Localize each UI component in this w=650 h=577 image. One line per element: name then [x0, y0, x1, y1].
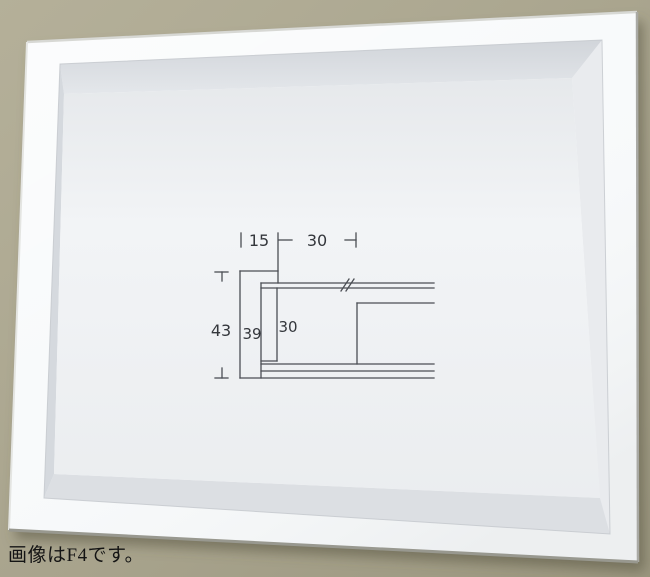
frame-right-edge-shade — [637, 12, 638, 562]
dim-label-inner-opening: 30 — [278, 318, 297, 336]
dim-label-face-width: 15 — [249, 231, 269, 250]
frame-photo: 15 30 43 39 30 — [0, 0, 650, 577]
dim-label-total-height: 43 — [211, 321, 231, 340]
caption-text: 画像はF4です。 — [8, 544, 144, 568]
product-photo: 15 30 43 39 30 画像はF4です。 — [0, 0, 650, 577]
dim-label-inner-depth: 39 — [242, 325, 261, 343]
dim-label-opening-width: 30 — [307, 231, 327, 250]
